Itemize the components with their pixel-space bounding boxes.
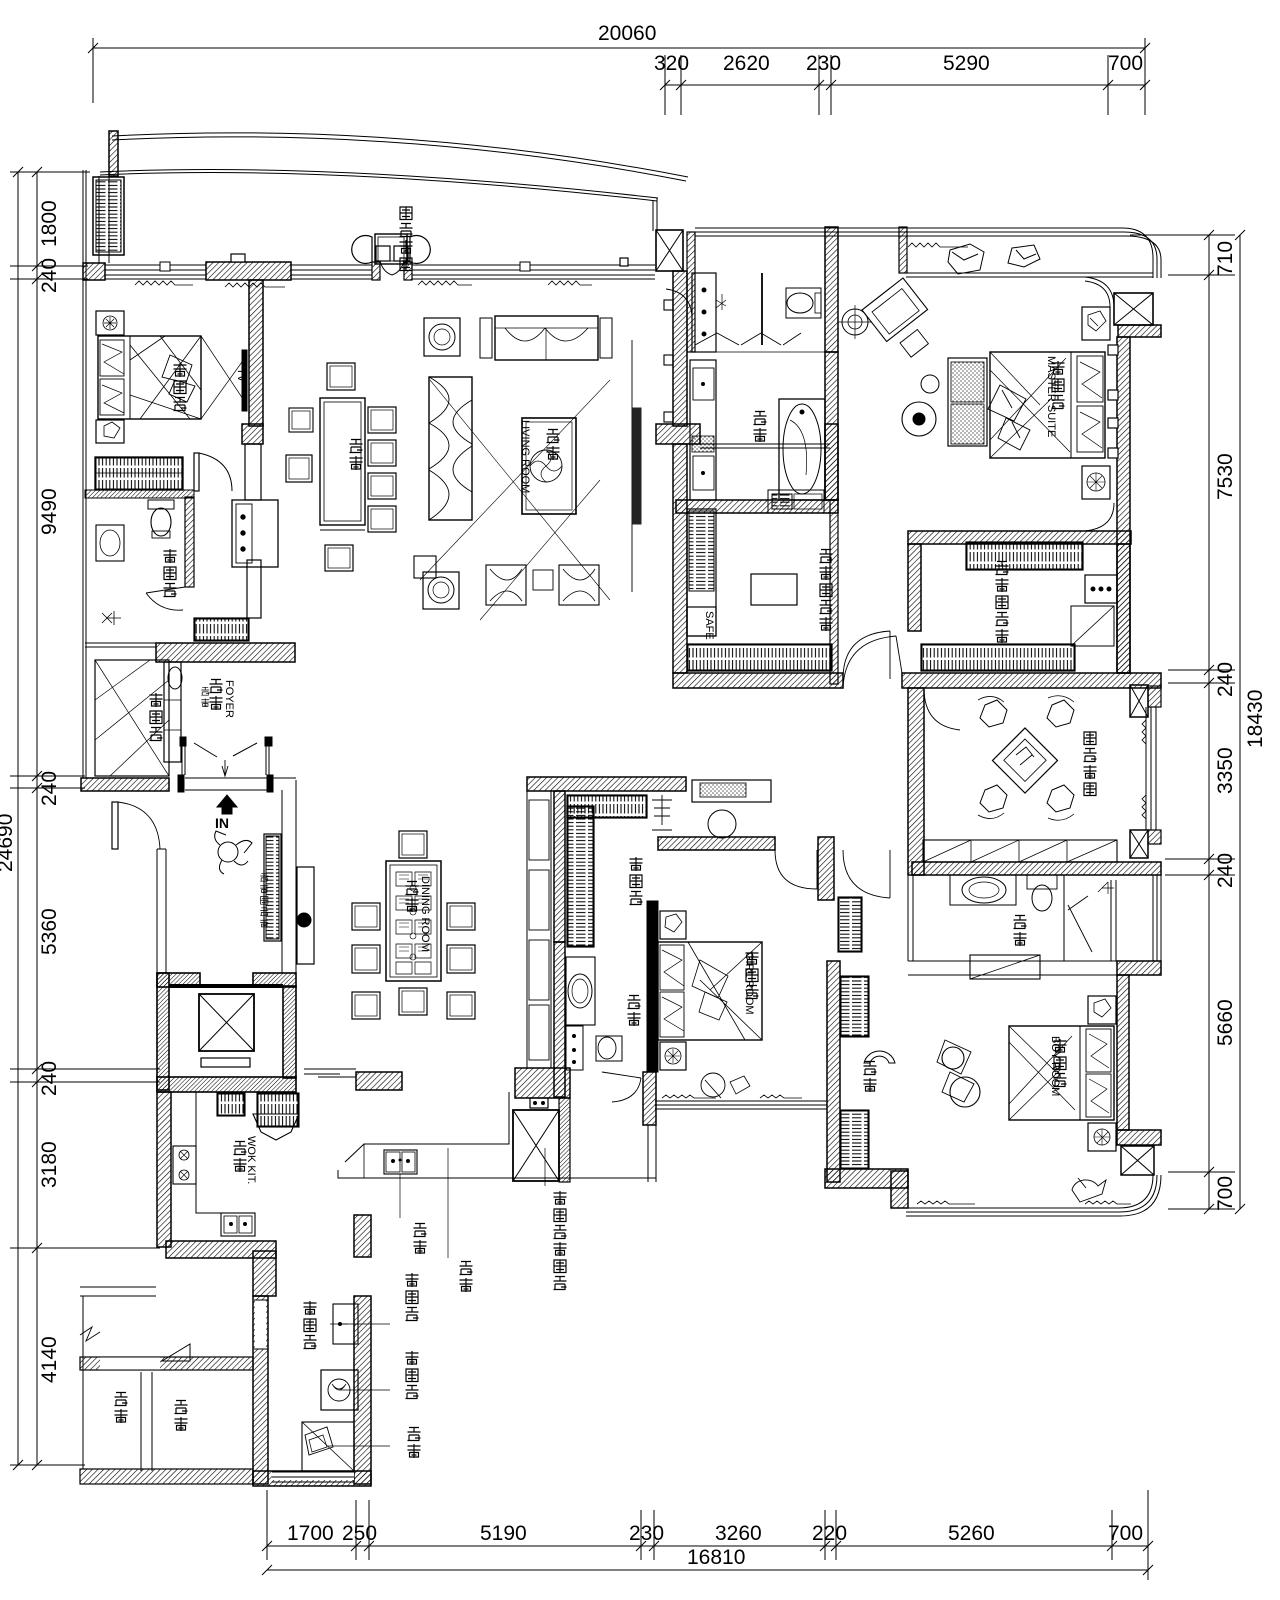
svg-text:3260: 3260 — [715, 1522, 762, 1545]
svg-text:4140: 4140 — [38, 1336, 61, 1383]
svg-text:16810: 16810 — [687, 1546, 745, 1569]
svg-text:5290: 5290 — [943, 52, 990, 75]
svg-text:MASTER SUITE: MASTER SUITE — [1045, 356, 1057, 437]
svg-text:1700: 1700 — [287, 1522, 334, 1545]
svg-text:IN: IN — [215, 815, 229, 831]
svg-text:3180: 3180 — [38, 1141, 61, 1188]
svg-text:700: 700 — [1214, 1176, 1237, 1211]
svg-text:2620: 2620 — [723, 52, 770, 75]
svg-text:220: 220 — [812, 1522, 847, 1545]
svg-text:FOYER: FOYER — [223, 680, 235, 718]
svg-text:18430: 18430 — [1244, 690, 1267, 748]
svg-text:230: 230 — [629, 1522, 664, 1545]
svg-text:GIRL ROOM: GIRL ROOM — [743, 952, 755, 1015]
svg-text:5360: 5360 — [38, 908, 61, 955]
svg-text:230: 230 — [806, 52, 841, 75]
svg-text:5260: 5260 — [948, 1522, 995, 1545]
svg-text:240: 240 — [1214, 662, 1237, 697]
svg-text:240: 240 — [38, 1061, 61, 1096]
svg-text:LIVING ROOM: LIVING ROOM — [519, 420, 531, 493]
svg-text:WOK KIT.: WOK KIT. — [245, 1136, 257, 1184]
svg-text:710: 710 — [1214, 241, 1237, 276]
svg-text:TV: TV — [235, 368, 247, 383]
svg-text:320: 320 — [654, 52, 689, 75]
svg-text:3350: 3350 — [1214, 747, 1237, 794]
svg-text:240: 240 — [38, 771, 61, 806]
svg-text:9490: 9490 — [38, 488, 61, 535]
svg-text:5190: 5190 — [480, 1522, 527, 1545]
svg-text:250: 250 — [342, 1522, 377, 1545]
svg-text:700: 700 — [1108, 52, 1143, 75]
svg-text:DINING ROOM: DINING ROOM — [419, 876, 431, 952]
svg-text:SAFE: SAFE — [703, 611, 715, 640]
svg-text:240: 240 — [1214, 853, 1237, 888]
svg-text:BOY ROOM: BOY ROOM — [1049, 1036, 1061, 1096]
svg-text:1800: 1800 — [38, 200, 61, 247]
svg-text:5660: 5660 — [1214, 999, 1237, 1046]
svg-text:24690: 24690 — [0, 814, 17, 872]
svg-text:20060: 20060 — [598, 22, 656, 45]
svg-text:7530: 7530 — [1214, 453, 1237, 500]
svg-text:240: 240 — [38, 258, 61, 293]
svg-text:700: 700 — [1108, 1522, 1143, 1545]
